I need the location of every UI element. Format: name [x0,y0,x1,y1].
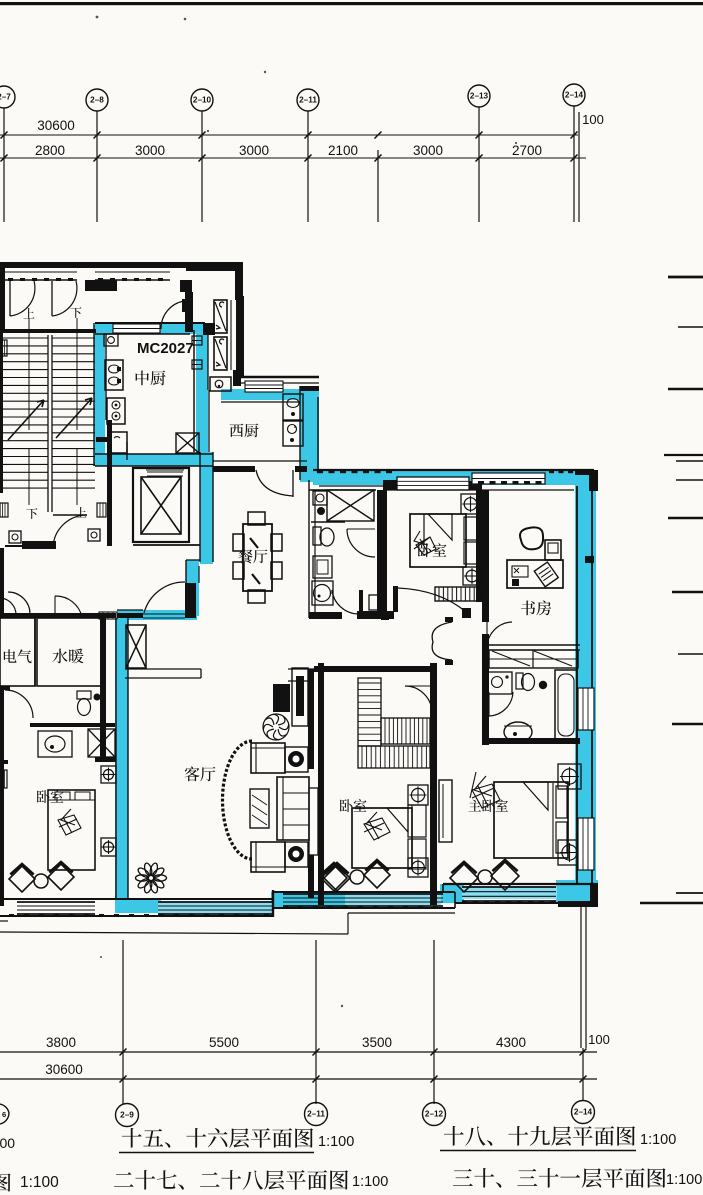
svg-text:2–8: 2–8 [90,96,104,105]
svg-text:2–7: 2–7 [0,93,11,102]
svg-text:3500: 3500 [362,1035,392,1050]
svg-text:100: 100 [588,1032,610,1047]
svg-text:2–14: 2–14 [574,1108,593,1117]
svg-text:6: 6 [2,1110,6,1119]
svg-text:2–12: 2–12 [425,1110,444,1119]
svg-text:2–13: 2–13 [470,92,489,101]
svg-text:3000: 3000 [239,143,269,158]
svg-text:1:100: 1:100 [20,1174,59,1191]
svg-text:30600: 30600 [37,118,75,133]
svg-text:100: 100 [582,112,604,127]
svg-text:3000: 3000 [135,143,165,158]
svg-text:2800: 2800 [35,143,65,158]
svg-text:2–10: 2–10 [193,96,212,105]
svg-text:2–14: 2–14 [565,91,584,100]
svg-text:MC2027: MC2027 [137,340,194,357]
svg-text:2–9: 2–9 [120,1111,134,1120]
svg-text:3800: 3800 [46,1035,76,1050]
svg-text:1:100: 1:100 [352,1174,388,1190]
svg-text:2700: 2700 [512,143,542,158]
svg-text:2100: 2100 [328,143,358,158]
svg-text:2–11: 2–11 [299,96,317,105]
svg-text:5500: 5500 [209,1035,239,1050]
svg-text:1:100: 1:100 [318,1134,354,1150]
svg-text:1:100: 1:100 [0,1135,15,1151]
svg-text:4300: 4300 [496,1035,526,1050]
svg-text:3000: 3000 [413,143,443,158]
svg-text:1:100: 1:100 [666,1172,702,1188]
svg-text:2–11: 2–11 [307,1110,325,1119]
svg-text:30600: 30600 [45,1062,83,1077]
svg-text:1:100: 1:100 [640,1132,676,1148]
